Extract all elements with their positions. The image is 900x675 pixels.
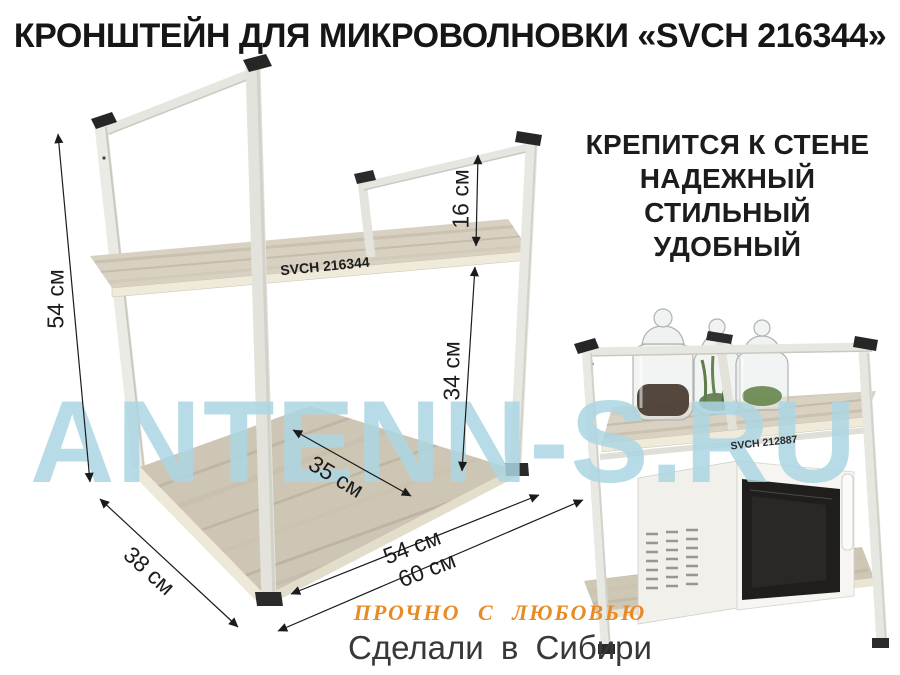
dim-height: 54 см [43,269,70,328]
feature-list: КРЕПИТСЯ К СТЕНЕ НАДЕЖНЫЙ СТИЛЬНЫЙ УДОБН… [555,128,900,264]
arrow-rail-height [476,155,478,246]
feature-item: НАДЕЖНЫЙ [555,162,900,196]
dim-shelf-to-base: 34 см [439,341,466,400]
slogan-text: ПРОЧНО С ЛЮБОВЬЮ [320,600,680,626]
feature-item: СТИЛЬНЫЙ [555,196,900,230]
product-card: ANTENN-S.RU КРОНШТЕЙН ДЛЯ МИКРОВОЛНОВКИ … [0,0,900,675]
page-title: КРОНШТЕЙН ДЛЯ МИКРОВОЛНОВКИ «SVCH 216344… [0,17,900,56]
feature-item: КРЕПИТСЯ К СТЕНЕ [555,128,900,162]
feature-item: УДОБНЫЙ [555,230,900,264]
dim-rail-height: 16 см [448,169,475,228]
made-in-text: Сделали в Сибири [310,629,690,667]
